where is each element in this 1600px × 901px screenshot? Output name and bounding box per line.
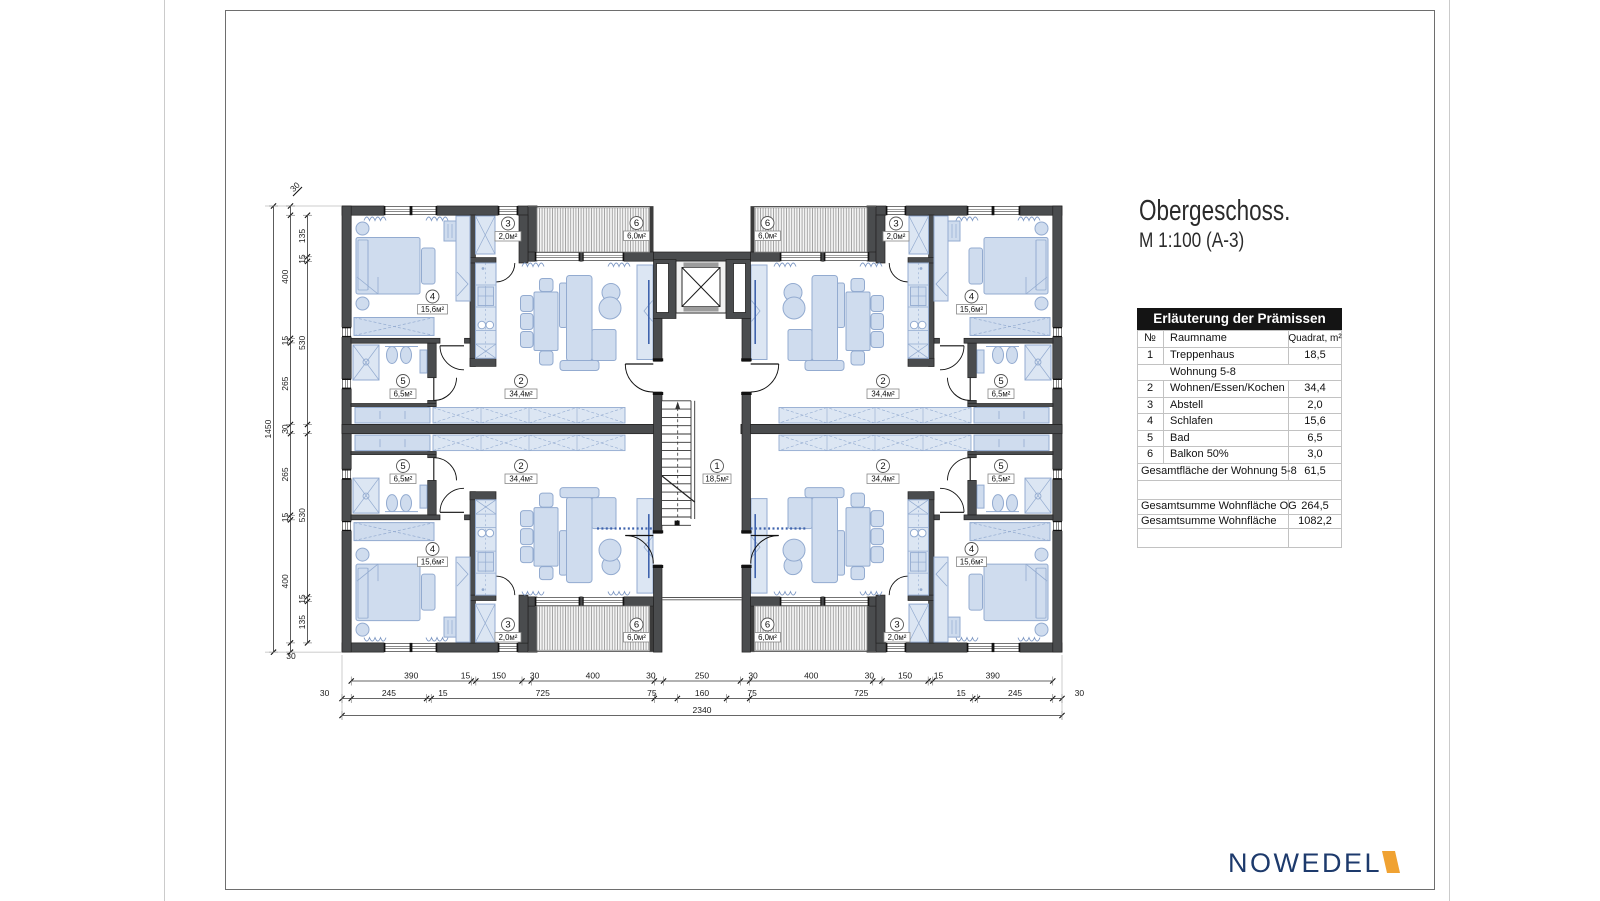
svg-text:15,6м²: 15,6м² bbox=[421, 305, 445, 314]
svg-text:2: 2 bbox=[880, 376, 885, 387]
svg-text:6,5м²: 6,5м² bbox=[992, 389, 1011, 398]
svg-text:4: 4 bbox=[430, 544, 435, 555]
svg-text:15,6м²: 15,6м² bbox=[960, 557, 984, 566]
svg-text:5: 5 bbox=[998, 376, 1003, 387]
svg-text:530: 530 bbox=[297, 336, 307, 350]
svg-text:245: 245 bbox=[382, 688, 396, 698]
svg-text:2,0м²: 2,0м² bbox=[888, 633, 907, 642]
svg-text:30: 30 bbox=[286, 651, 296, 661]
svg-text:15: 15 bbox=[934, 671, 944, 681]
svg-text:75: 75 bbox=[647, 688, 657, 698]
svg-text:2: 2 bbox=[880, 461, 885, 472]
svg-text:34,4м²: 34,4м² bbox=[509, 389, 533, 398]
svg-text:6: 6 bbox=[765, 620, 770, 631]
svg-text:5: 5 bbox=[400, 461, 405, 472]
svg-text:30: 30 bbox=[748, 671, 758, 681]
svg-text:400: 400 bbox=[280, 269, 290, 283]
svg-text:75: 75 bbox=[747, 688, 757, 698]
svg-text:4: 4 bbox=[430, 292, 435, 303]
svg-text:15: 15 bbox=[280, 513, 290, 523]
svg-text:15: 15 bbox=[297, 594, 307, 604]
svg-text:265: 265 bbox=[280, 467, 290, 481]
svg-text:34,4м²: 34,4м² bbox=[871, 389, 895, 398]
svg-text:160: 160 bbox=[695, 688, 709, 698]
svg-text:135: 135 bbox=[297, 615, 307, 629]
svg-text:400: 400 bbox=[804, 671, 818, 681]
svg-text:6,5м²: 6,5м² bbox=[394, 389, 413, 398]
svg-text:390: 390 bbox=[404, 671, 418, 681]
svg-text:245: 245 bbox=[1008, 688, 1022, 698]
svg-text:4: 4 bbox=[969, 292, 974, 303]
svg-text:3: 3 bbox=[505, 219, 510, 230]
svg-text:6,5м²: 6,5м² bbox=[992, 474, 1011, 483]
svg-text:6,5м²: 6,5м² bbox=[394, 474, 413, 483]
svg-text:30: 30 bbox=[320, 688, 330, 698]
svg-text:725: 725 bbox=[854, 688, 868, 698]
svg-text:2,0м²: 2,0м² bbox=[887, 232, 906, 241]
svg-text:400: 400 bbox=[586, 671, 600, 681]
svg-text:2,0м²: 2,0м² bbox=[499, 633, 518, 642]
svg-text:34,4м²: 34,4м² bbox=[871, 474, 895, 483]
svg-text:30: 30 bbox=[530, 671, 540, 681]
svg-text:15: 15 bbox=[461, 671, 471, 681]
svg-text:6,0м²: 6,0м² bbox=[758, 231, 777, 240]
svg-text:390: 390 bbox=[986, 671, 1000, 681]
svg-text:3: 3 bbox=[893, 219, 898, 230]
svg-text:265: 265 bbox=[280, 376, 290, 390]
svg-text:6: 6 bbox=[634, 218, 639, 229]
svg-text:150: 150 bbox=[898, 671, 912, 681]
svg-text:30: 30 bbox=[280, 424, 290, 434]
svg-text:3: 3 bbox=[505, 620, 510, 631]
svg-text:6,0м²: 6,0м² bbox=[627, 231, 646, 240]
svg-text:2: 2 bbox=[518, 376, 523, 387]
svg-text:30: 30 bbox=[1075, 688, 1085, 698]
svg-text:15: 15 bbox=[438, 688, 448, 698]
svg-text:4: 4 bbox=[969, 544, 974, 555]
svg-text:15: 15 bbox=[297, 254, 307, 264]
svg-text:18,5м²: 18,5м² bbox=[705, 474, 729, 483]
svg-text:6,0м²: 6,0м² bbox=[627, 633, 646, 642]
svg-text:30: 30 bbox=[865, 671, 875, 681]
svg-text:1450: 1450 bbox=[263, 419, 273, 438]
svg-text:6: 6 bbox=[634, 620, 639, 631]
svg-text:2340: 2340 bbox=[693, 705, 712, 715]
svg-text:530: 530 bbox=[297, 508, 307, 522]
svg-text:15: 15 bbox=[956, 688, 966, 698]
svg-text:30: 30 bbox=[288, 180, 302, 194]
svg-text:2: 2 bbox=[518, 461, 523, 472]
svg-text:15,6м²: 15,6м² bbox=[960, 305, 984, 314]
svg-text:400: 400 bbox=[280, 574, 290, 588]
svg-text:34,4м²: 34,4м² bbox=[509, 474, 533, 483]
svg-text:15,6м²: 15,6м² bbox=[421, 557, 445, 566]
svg-text:6: 6 bbox=[765, 218, 770, 229]
svg-text:15: 15 bbox=[280, 336, 290, 346]
svg-text:6,0м²: 6,0м² bbox=[758, 633, 777, 642]
svg-text:250: 250 bbox=[695, 671, 709, 681]
svg-text:135: 135 bbox=[297, 229, 307, 243]
svg-text:3: 3 bbox=[894, 620, 899, 631]
svg-text:2,0м²: 2,0м² bbox=[499, 232, 518, 241]
svg-text:5: 5 bbox=[998, 461, 1003, 472]
svg-text:1: 1 bbox=[714, 461, 719, 472]
svg-text:30: 30 bbox=[646, 671, 656, 681]
svg-text:5: 5 bbox=[400, 376, 405, 387]
svg-text:150: 150 bbox=[492, 671, 506, 681]
svg-text:725: 725 bbox=[536, 688, 550, 698]
